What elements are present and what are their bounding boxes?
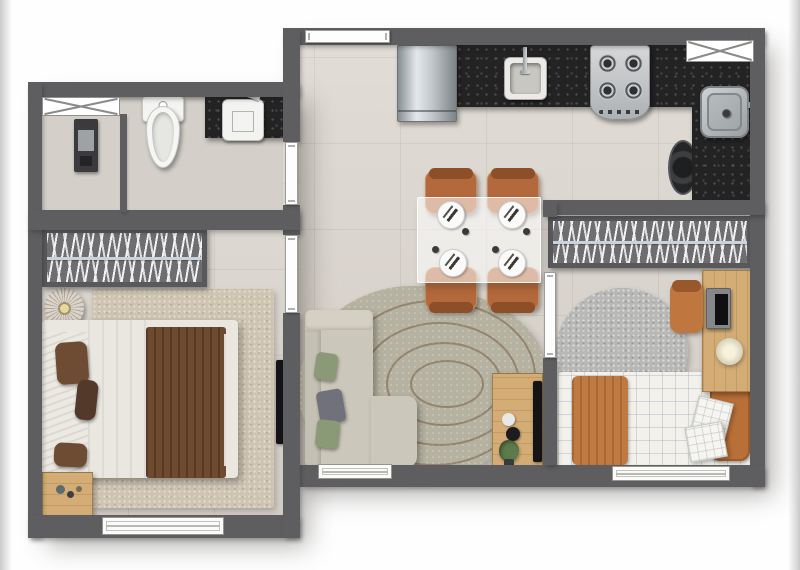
white-cushion <box>684 421 728 463</box>
window-pane-line <box>106 525 220 527</box>
decor-item <box>76 486 82 492</box>
burner <box>624 81 643 100</box>
glass <box>432 246 439 253</box>
plate <box>437 201 465 229</box>
hanger-rod <box>47 257 202 260</box>
shower-column <box>74 119 98 172</box>
rug-contour-line <box>410 360 484 408</box>
sink-basin-line <box>232 111 254 132</box>
pillow <box>53 442 87 468</box>
glass <box>492 246 499 253</box>
decor-plate-white <box>502 413 515 426</box>
faucet-spout <box>520 70 530 74</box>
cutlery <box>442 205 460 224</box>
wall-bedroom-1-right <box>283 313 300 538</box>
wall-bathroom-top <box>28 82 300 97</box>
burner <box>598 54 617 73</box>
laptop <box>706 288 731 329</box>
chair-back <box>491 302 535 313</box>
cutlery <box>503 253 521 272</box>
fridge-door-line <box>398 110 456 112</box>
plate <box>498 249 526 277</box>
glass <box>462 228 469 235</box>
desk-lamp <box>716 338 743 365</box>
wall-hall-left <box>283 28 300 142</box>
plate <box>439 249 467 277</box>
chair-back <box>429 302 473 313</box>
page-edge-left <box>0 0 12 570</box>
floor-plan <box>0 0 800 570</box>
bed-duvet <box>88 320 150 478</box>
kitchen-window <box>686 40 754 62</box>
chair-back <box>672 280 701 292</box>
glass <box>523 228 530 235</box>
region-hall <box>300 45 397 200</box>
decor-item <box>56 485 65 494</box>
cutlery <box>503 205 521 224</box>
bathroom-window <box>42 97 120 116</box>
wall-kitchen-bedroom-2 <box>543 200 765 215</box>
pillow <box>55 341 90 385</box>
entry-door <box>305 30 390 43</box>
toilet-seat <box>152 112 174 162</box>
decor-disc-black <box>506 427 520 441</box>
shower-panel <box>78 130 94 151</box>
bedroom-1-window <box>102 517 224 535</box>
chair-back <box>491 168 535 179</box>
wall-bathroom-bottom <box>28 210 300 230</box>
wall-left <box>28 82 42 538</box>
pillow-small <box>74 379 99 421</box>
wall-right <box>750 28 765 487</box>
wardrobe-bedroom-1 <box>42 228 207 287</box>
laundry-tank <box>700 86 749 138</box>
hanger-rod <box>553 241 747 244</box>
decor-item <box>67 491 74 498</box>
stove-knobs <box>599 110 641 114</box>
nightstand <box>42 472 93 518</box>
tv-living <box>533 381 542 462</box>
cushion-green <box>313 352 339 382</box>
mattress-edge <box>224 334 238 466</box>
window-pane-line <box>322 471 388 473</box>
plate <box>498 201 526 229</box>
laptop-screen <box>715 294 728 325</box>
window-pane-line <box>616 473 726 475</box>
wardrobe-bedroom-2 <box>548 216 752 268</box>
stove <box>590 45 650 120</box>
sofa-chaise <box>371 396 417 467</box>
faucet <box>523 47 527 72</box>
tank-drain <box>722 109 731 118</box>
bedroom-2-window <box>612 466 730 481</box>
wall-bedroom-2-corner <box>543 200 557 217</box>
living-window <box>318 464 392 479</box>
burner <box>624 54 643 73</box>
burner <box>598 81 617 100</box>
bedroom-2-door <box>544 272 556 358</box>
sofa-armrest <box>305 310 373 330</box>
bedroom-1-door <box>285 235 298 313</box>
orange-blanket <box>572 376 628 465</box>
bed-blanket <box>146 327 226 478</box>
double-bed <box>42 320 238 478</box>
bathroom-sink <box>222 99 264 141</box>
desk-chair <box>670 282 703 333</box>
shower-base <box>80 156 92 166</box>
wall-living-bedroom-2 <box>543 358 557 465</box>
shower-partition <box>120 114 127 212</box>
bathroom-door <box>285 142 298 205</box>
cushion-green <box>315 419 341 449</box>
refrigerator <box>397 45 457 122</box>
cutlery <box>444 253 462 272</box>
chair-back <box>429 168 473 179</box>
page-edge-right <box>788 0 800 570</box>
